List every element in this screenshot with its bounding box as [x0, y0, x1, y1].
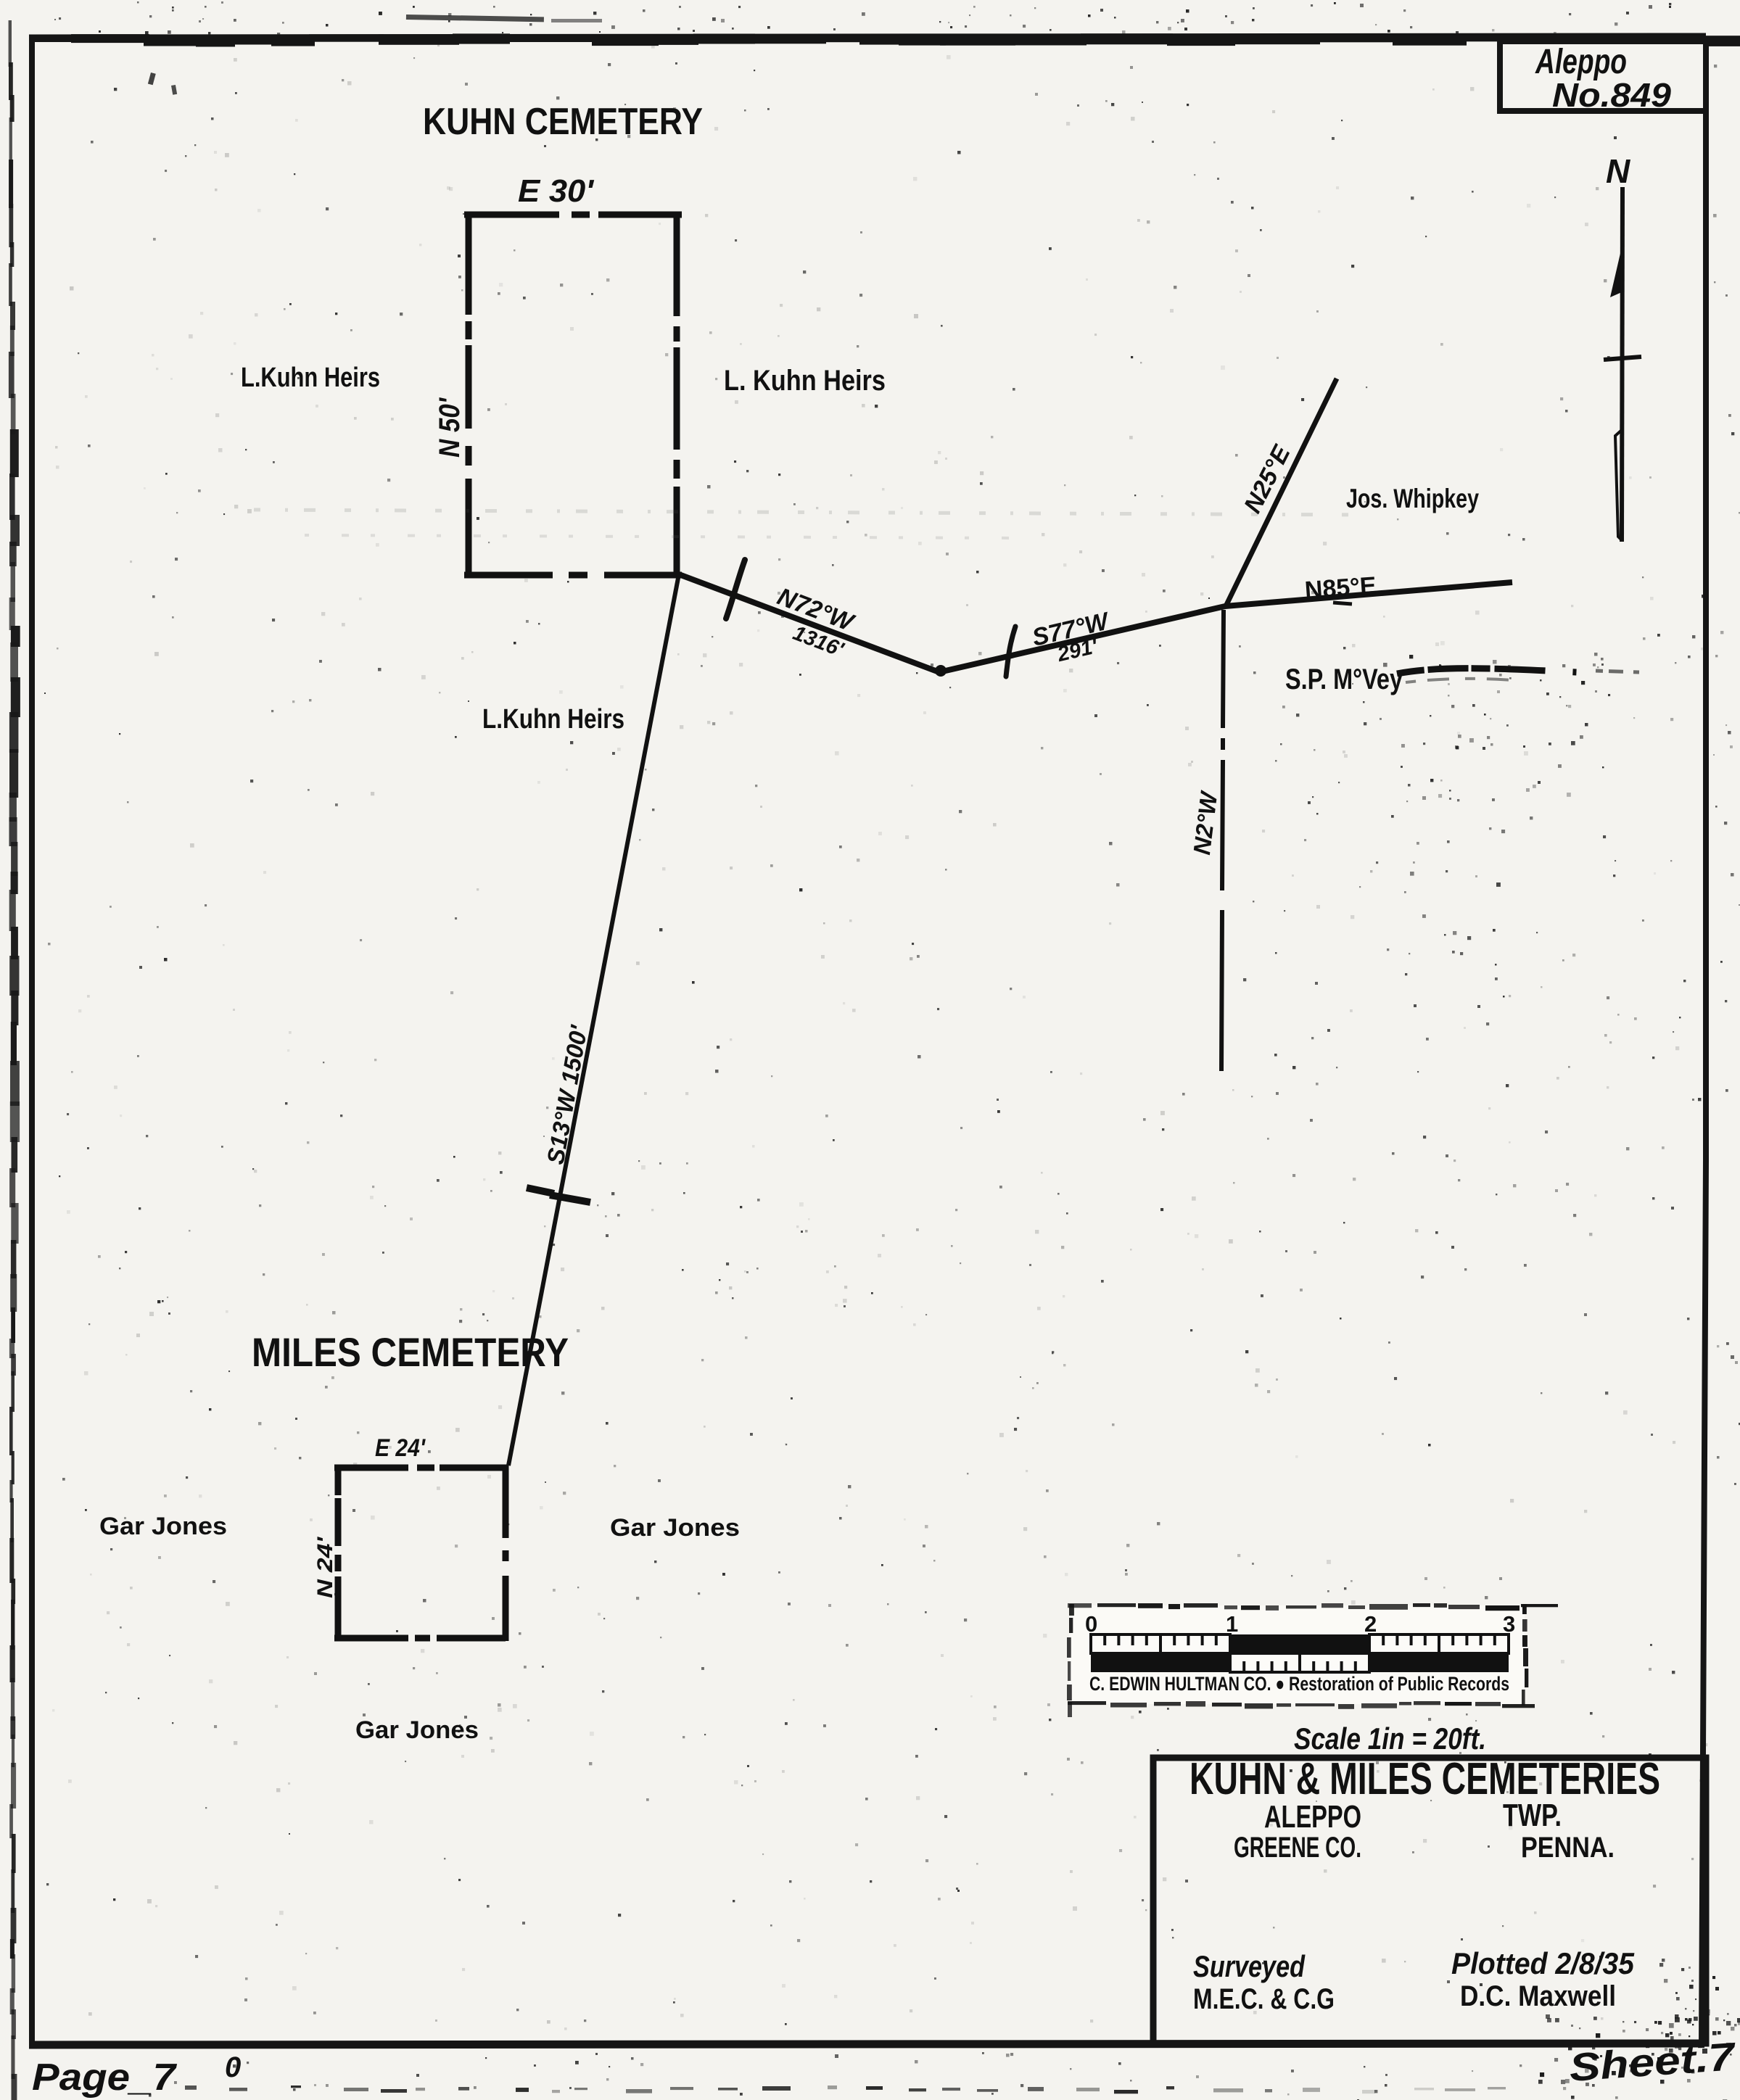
svg-text:N: N — [1606, 152, 1630, 190]
svg-text:GREENE CO.: GREENE CO. — [1234, 1832, 1361, 1864]
svg-text:TWP.: TWP. — [1503, 1798, 1562, 1833]
svg-text:D.C. Maxwell: D.C. Maxwell — [1460, 1980, 1616, 2012]
svg-text:M.E.C. & C.G: M.E.C. & C.G — [1193, 1983, 1335, 2015]
svg-text:L.Kuhn Heirs: L.Kuhn Heirs — [482, 704, 624, 735]
svg-text:N 24': N 24' — [313, 1537, 337, 1598]
svg-text:Surveyed: Surveyed — [1193, 1949, 1306, 1983]
svg-text:Jos. Whipkey: Jos. Whipkey — [1346, 484, 1479, 513]
svg-text:No.849: No.849 — [1552, 76, 1671, 114]
svg-text:L.Kuhn Heirs: L.Kuhn Heirs — [241, 363, 380, 393]
svg-text:0: 0 — [1085, 1611, 1097, 1637]
svg-text:Gar Jones: Gar Jones — [355, 1716, 479, 1744]
svg-text:KUHN & MILES CEMETERIES: KUHN & MILES CEMETERIES — [1189, 1754, 1660, 1804]
svg-text:Page_7: Page_7 — [32, 2056, 177, 2099]
svg-text:Gar Jones: Gar Jones — [610, 1514, 740, 1542]
svg-text:E 24': E 24' — [375, 1434, 426, 1462]
svg-text:PENNA.: PENNA. — [1521, 1832, 1615, 1864]
svg-text:MILES CEMETERY: MILES CEMETERY — [252, 1329, 569, 1375]
svg-text:KUHN CEMETERY: KUHN CEMETERY — [423, 101, 703, 143]
svg-text:2: 2 — [1364, 1611, 1377, 1637]
svg-text:0: 0 — [225, 2051, 241, 2083]
svg-text:C. EDWIN HULTMAN CO. ● Resto: C. EDWIN HULTMAN CO. ● Restoration of Pu… — [1089, 1673, 1509, 1695]
svg-text:Plotted 2/8/35: Plotted 2/8/35 — [1451, 1946, 1635, 1980]
svg-text:Scale 1in = 20ft.: Scale 1in = 20ft. — [1294, 1721, 1486, 1756]
svg-text:N85°E: N85°E — [1304, 572, 1377, 605]
svg-text:Gar Jones: Gar Jones — [99, 1513, 227, 1540]
svg-text:ALEPPO: ALEPPO — [1264, 1799, 1361, 1835]
svg-text:1: 1 — [1226, 1611, 1238, 1637]
svg-text:N 50': N 50' — [434, 397, 466, 458]
svg-text:L. Kuhn Heirs: L. Kuhn Heirs — [724, 365, 886, 397]
svg-text:E 30': E 30' — [518, 173, 595, 209]
svg-text:S.P. M°Vey: S.P. M°Vey — [1285, 664, 1403, 695]
svg-text:3: 3 — [1503, 1611, 1515, 1637]
